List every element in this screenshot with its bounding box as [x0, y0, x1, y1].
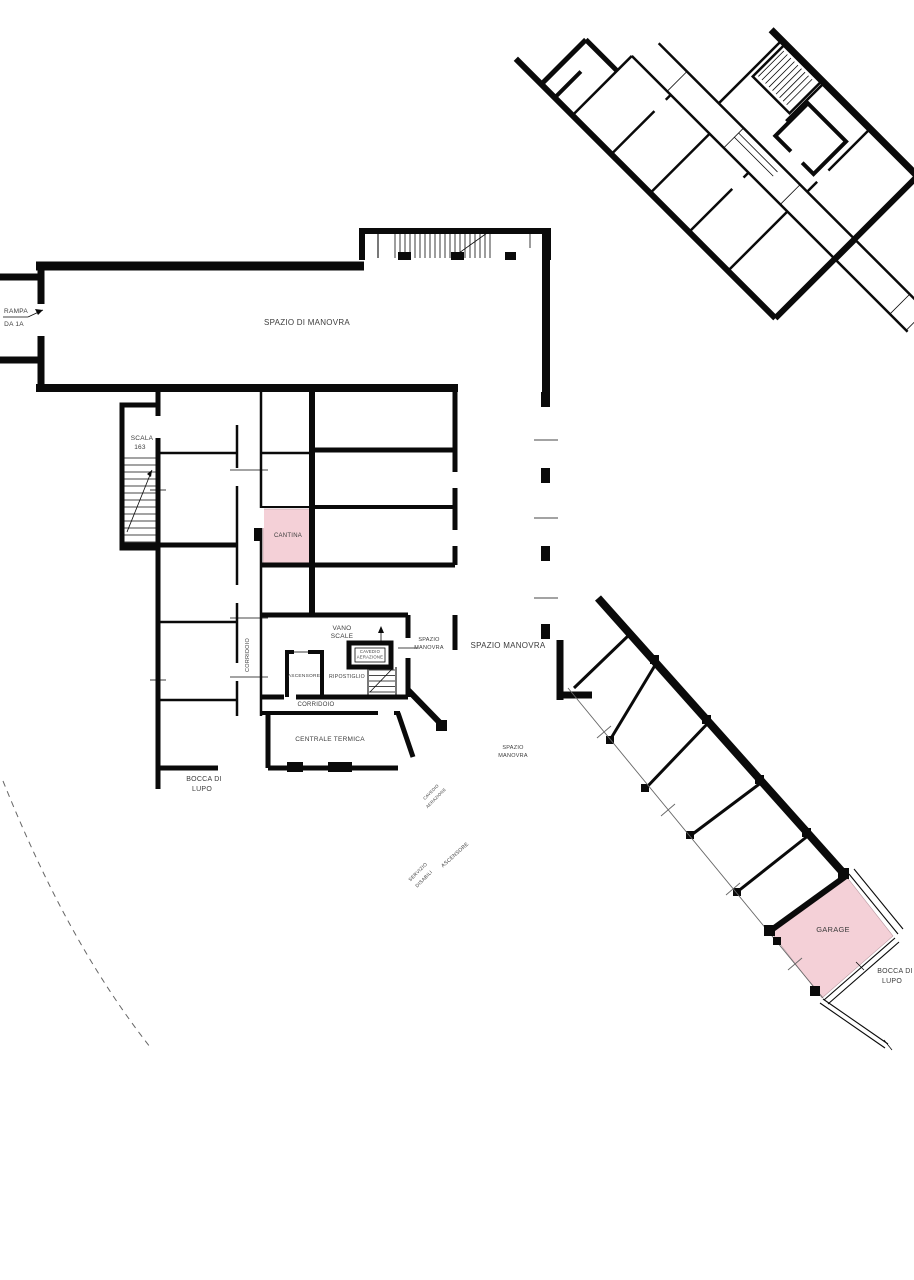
ripostiglio-label: RIPOSTIGLIO [329, 674, 365, 680]
bocca-di-lupo-left-label-line1: BOCCA DI [186, 776, 221, 783]
garage-label: GARAGE [816, 925, 850, 934]
top-stair-block [362, 231, 548, 260]
ascensore-label: ASCENSORE [288, 673, 320, 679]
stair-tread [773, 65, 798, 90]
spazio-di-manovra-label: SPAZIO DI MANOVRA [264, 318, 350, 327]
garage-wing [560, 598, 903, 1050]
floor-plan-page: RAMPADA 1ASPAZIO DI MANOVRASCALA163CANTI… [0, 0, 914, 1280]
floor-plan-drawing: RAMPADA 1ASPAZIO DI MANOVRASCALA163CANTI… [0, 0, 914, 1280]
ascensore-diag-label: ASCENSORE [440, 841, 470, 869]
stair-tread [780, 72, 805, 97]
stair-tread [762, 55, 787, 80]
vano-scale-label-line1: VANO [333, 625, 352, 632]
stair-tread [769, 62, 794, 87]
scala-label-line2: 163 [134, 444, 146, 451]
rampa-label-line2: DA 1A [4, 321, 24, 328]
bocca-di-lupo-right-label-line1: BOCCA DI [877, 968, 912, 975]
centrale-termica-label: CENTRALE TERMICA [295, 736, 365, 743]
spazio-manovra-small-label-line1: SPAZIO [418, 637, 440, 643]
spazio-manovra-mid-label-line1: SPAZIO [502, 745, 524, 751]
diagonal-cluster [516, 0, 914, 419]
bocca-di-lupo-right-label-line2: LUPO [882, 978, 902, 985]
rampa-label-line1: RAMPA [4, 308, 28, 315]
stair-tread [776, 69, 801, 94]
spazio-manovra-big-label: SPAZIO MANOVRA [471, 641, 546, 650]
spazio-manovra-mid-label-line2: MANOVRA [498, 753, 528, 759]
stair-tread [787, 79, 812, 104]
labels-layer: RAMPADA 1ASPAZIO DI MANOVRASCALA163CANTI… [4, 308, 913, 985]
cavedio-label-line2: AERAZIONE [357, 655, 383, 660]
scala-label-line1: SCALA [131, 435, 154, 442]
bocca-di-lupo-left-label-line2: LUPO [192, 786, 212, 793]
corridoio-horizontal-label: CORRIDOIO [298, 702, 335, 708]
stair-tread [765, 58, 790, 83]
cantina-label: CANTINA [274, 533, 302, 539]
spazio-manovra-small-label-line2: MANOVRA [414, 645, 444, 651]
corridoio-vertical-label: CORRIDOIO [245, 638, 251, 673]
vano-scale-label-line2: SCALE [331, 633, 354, 640]
cavedio-label-line1: CAVEDIO [360, 649, 381, 654]
stair-tread [758, 51, 783, 76]
top-corridor [0, 228, 558, 639]
central-block [122, 385, 459, 789]
site-boundary-arc [3, 781, 150, 1047]
